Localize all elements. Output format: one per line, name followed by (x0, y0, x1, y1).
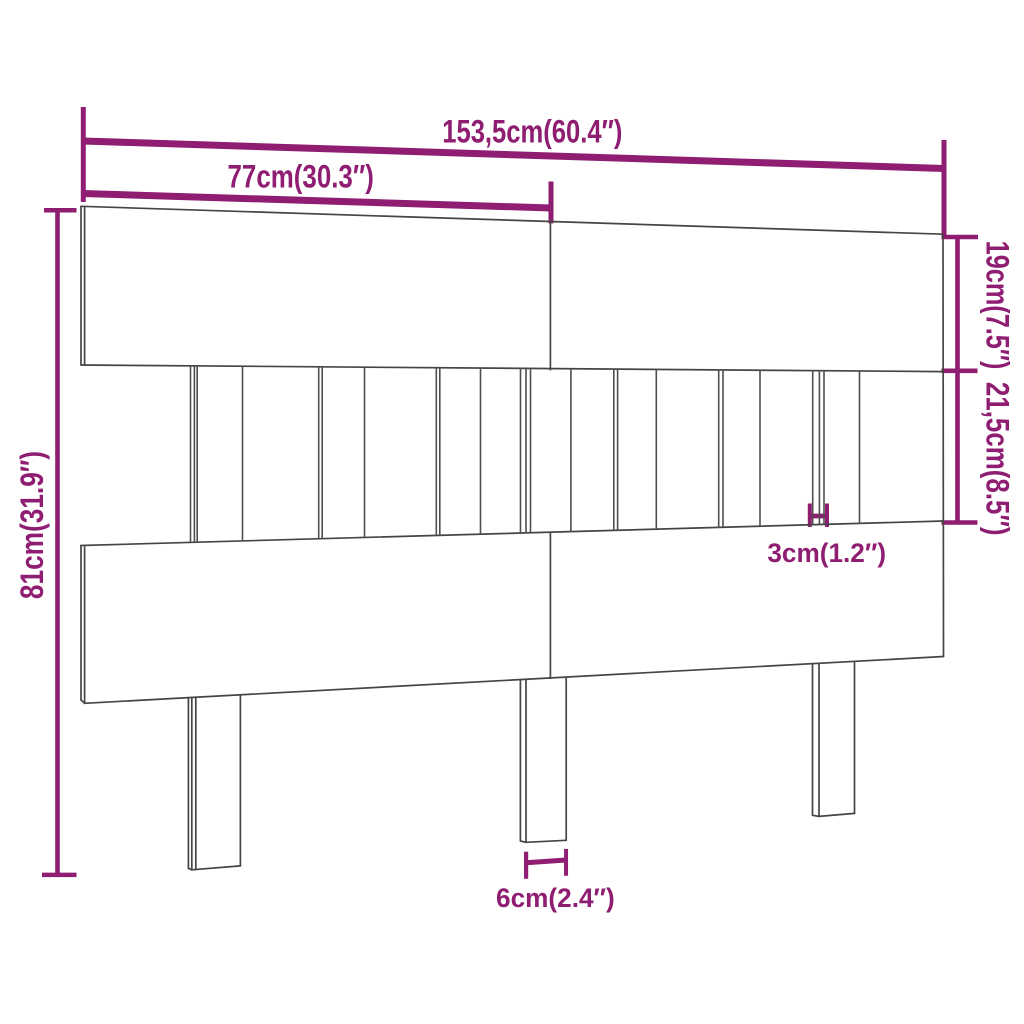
svg-text:21,5cm(8.5″): 21,5cm(8.5″) (979, 382, 1014, 536)
svg-text:77cm(30.3″): 77cm(30.3″) (228, 160, 374, 195)
svg-text:153,5cm(60.4″): 153,5cm(60.4″) (442, 115, 622, 150)
svg-text:3cm(1.2″): 3cm(1.2″) (767, 538, 886, 568)
svg-text:19cm(7.5″): 19cm(7.5″) (979, 241, 1015, 370)
svg-text:6cm(2.4″): 6cm(2.4″) (496, 883, 615, 913)
svg-text:81cm(31.9″): 81cm(31.9″) (16, 451, 51, 599)
